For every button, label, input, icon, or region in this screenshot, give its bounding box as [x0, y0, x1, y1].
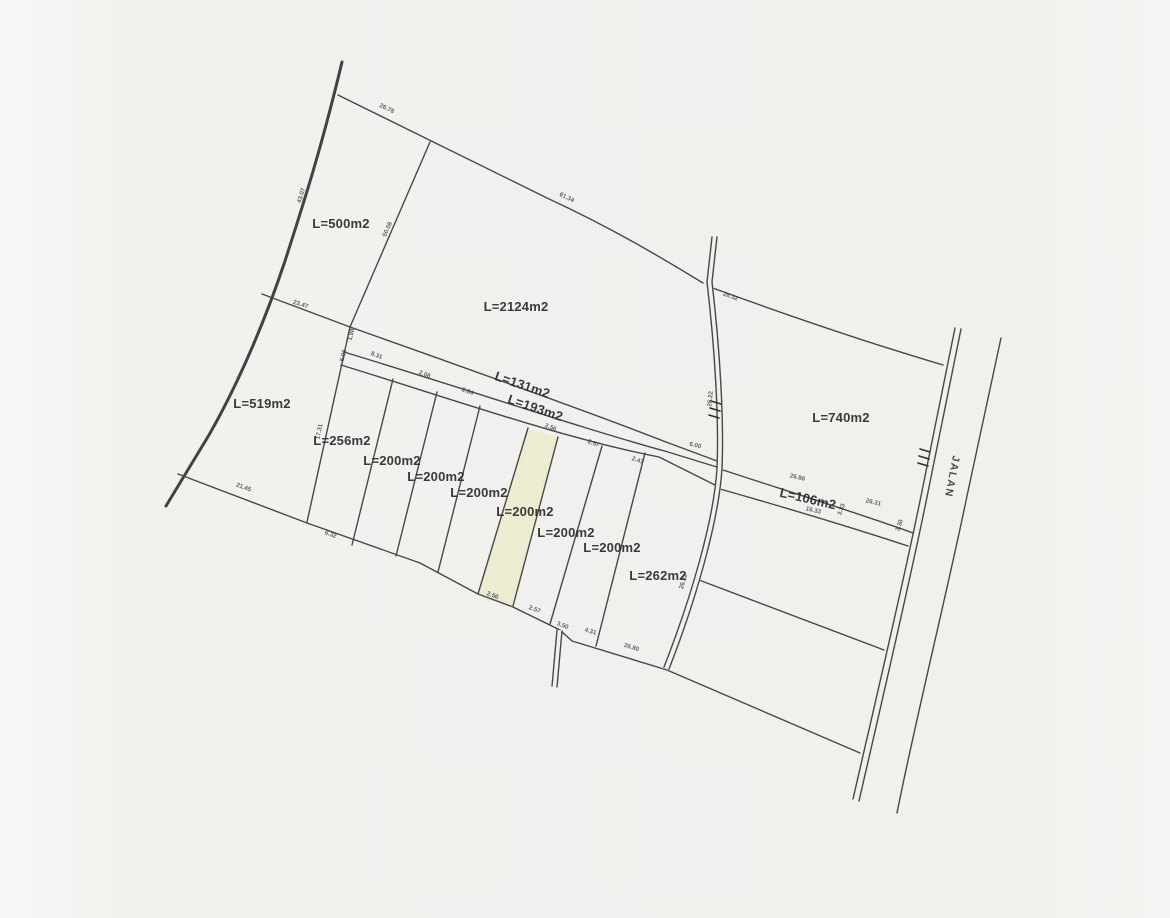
dimension-label: 26.80 [623, 642, 640, 653]
dimension-label: 26.31 [865, 497, 882, 507]
divider-southeast [699, 580, 884, 650]
parcel-label: L=519m2 [233, 396, 290, 411]
dimension-label: 6.00 [689, 441, 703, 451]
dimension-label: 5.00 [339, 348, 349, 362]
road-name-label: JALAN [942, 455, 962, 499]
top-boundary-west [338, 95, 703, 283]
dimension-label: 4.31 [584, 626, 598, 636]
road-right-line [897, 338, 1001, 813]
road-name: JALAN [942, 455, 962, 499]
road-hatch [918, 463, 928, 466]
parcel-label: L=200m2 [363, 453, 420, 468]
parcel-label: L=200m2 [450, 485, 507, 500]
dimension-label: 6.32 [324, 529, 338, 540]
dimension-label: 2.84 [461, 386, 475, 397]
dimension-label: 21.45 [235, 482, 252, 494]
parcel-label: L=200m2 [407, 469, 464, 484]
dimension-labels: 26.7861.3443.0750.0823.471.985.008.312.0… [235, 102, 905, 653]
road-hatch [919, 456, 929, 459]
dimension-label: 26.86 [789, 472, 806, 482]
survey-plan-svg: L=500m2L=2124m2L=519m2L=740m2L=131m2L=19… [0, 0, 1170, 918]
road-jalan-lines [853, 328, 1001, 813]
dimension-label: 26.22 [706, 390, 715, 407]
scanned-survey-page: L=500m2L=2124m2L=519m2L=740m2L=131m2L=19… [0, 0, 1170, 918]
dimension-label: 61.34 [558, 191, 575, 204]
road-left-line [853, 328, 955, 799]
parcel-label-highlighted: L=200m2 [496, 504, 553, 519]
parcel-label: L=2124m2 [484, 299, 549, 314]
dimension-label: 2.57 [587, 438, 601, 449]
parcel-label: L=262m2 [629, 568, 686, 583]
dimension-label: 2.47 [631, 455, 645, 466]
parcel-label: L=200m2 [583, 540, 640, 555]
dimension-label: 26.78 [378, 102, 395, 115]
dimension-label: 26.32 [722, 291, 739, 303]
top-boundary-east [710, 287, 943, 365]
road-hatch [920, 449, 930, 452]
parcel-label: L=200m2 [537, 525, 594, 540]
dimension-label: 8.31 [370, 350, 384, 361]
divider-500-2124 [350, 142, 430, 327]
dimension-label: 1.98 [347, 327, 357, 341]
parcel-label: L=500m2 [312, 216, 369, 231]
dimension-label: 2.57 [528, 604, 542, 615]
parcel-label: L=740m2 [812, 410, 869, 425]
divider-500-519 [262, 294, 350, 327]
